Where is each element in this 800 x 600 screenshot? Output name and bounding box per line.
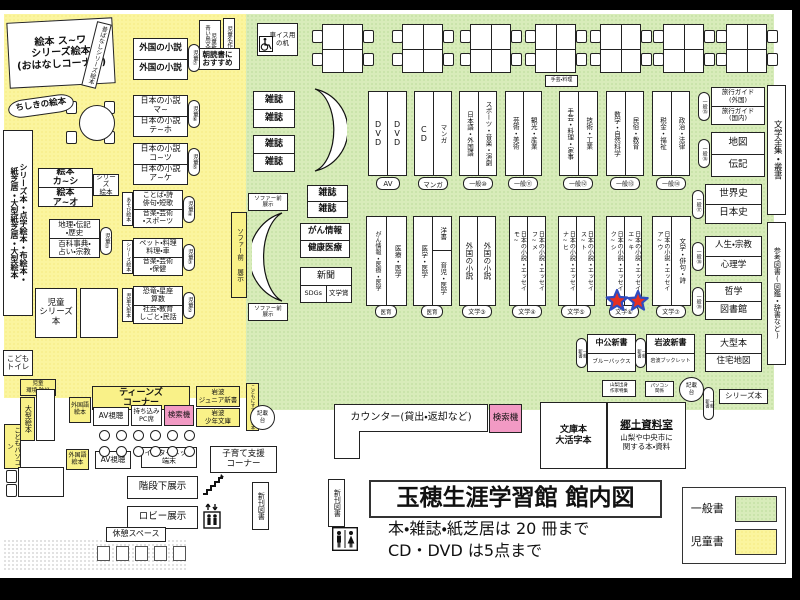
bench — [154, 546, 167, 561]
new-arrivals-shelf-1: 新刊図書 — [252, 482, 269, 530]
lobby-display: ロビー展示 — [127, 506, 198, 529]
reading-table — [600, 24, 641, 73]
music-art-health: 音楽・芸術 ・保健 — [134, 257, 182, 276]
shelf-column: 技術・工業 — [578, 91, 598, 176]
chair — [767, 53, 778, 66]
magazines-shelf: 雑誌 — [308, 186, 347, 201]
shelf-column-stack: 洋書 育児・医学 — [432, 216, 452, 306]
chair — [443, 30, 454, 43]
highlight-stars-icon — [605, 288, 651, 315]
tag-ippan-15: 一般⑮ — [698, 92, 710, 121]
maps-shelf: 地図 — [712, 133, 764, 154]
foreign-language-picture-books-2: 外国語 絵本 — [66, 449, 89, 470]
japanese-history-shelf: 日本史 — [706, 204, 761, 224]
empty-shelf — [80, 288, 118, 338]
teens-seat — [167, 446, 178, 457]
tag-av: AV — [376, 177, 400, 190]
chair — [511, 53, 522, 66]
chair — [363, 53, 374, 66]
chair — [511, 30, 522, 43]
shelf-column: DVD — [368, 91, 388, 176]
children-toilet: こども トイレ — [3, 350, 33, 376]
literary-prize-shelf: 文学賞 — [326, 286, 352, 303]
series-picture-books-label: シリーズ絵本 — [122, 240, 133, 274]
stairs-icon — [201, 473, 225, 500]
computer-books-box: パソコン 関係 — [645, 381, 674, 397]
search-terminal-counter: 検索機 — [489, 404, 522, 433]
shelf-column: がん情報・医療・医学 — [366, 216, 387, 306]
chair — [641, 30, 652, 43]
av-viewing-seat: AV視聴 — [93, 407, 129, 426]
map-title: 玉穂生涯学習館 館内図 — [369, 480, 662, 518]
elevator-icon — [203, 503, 221, 529]
shelf-column: 日本語・外国語 — [459, 91, 479, 176]
shelf-art-tourism: 芸術・美術 観光・産業 — [505, 91, 542, 176]
chair — [66, 131, 77, 144]
service-counter: カウンター(貸出・返却など) — [334, 404, 488, 432]
japanese-novels-ko-tsu: 日本の小説 コ~ツ — [134, 144, 187, 164]
shelf-tax-politics: 税金・福祉 政治・法律 — [652, 91, 690, 176]
tag-ippan-13: 一般⑬ — [610, 177, 640, 190]
pets-cooking-cars: ペット・料理 料理・車 — [134, 239, 182, 257]
local-materials-room-title: 郷土資料室 — [620, 420, 673, 432]
teens-seat — [133, 446, 144, 457]
reading-table — [402, 24, 443, 73]
morning-reading-recommended: 朝読書に おすすめ — [195, 48, 240, 70]
legend-children-swatch — [735, 529, 777, 555]
children-computer: こどもパソコン — [4, 424, 21, 469]
tag-ippan-17: 一般⑰ — [692, 190, 704, 219]
biography-shelf: 伝記 — [712, 154, 764, 176]
sofa-front-display-small-2: ソファー前 展示 — [248, 303, 288, 321]
legend-children-label: 児童書 — [691, 536, 724, 548]
tag-ippan-shinsho-2: 一般 新書 — [635, 338, 646, 368]
shelf-column: 観光・産業 — [523, 91, 542, 176]
shelf-column: 日本の小説・エッセイ モ~ — [509, 216, 528, 306]
foreign-novels-children-1: 外国の小説 — [134, 39, 187, 59]
iwanami-junior-shinsho: 岩波 ジュニア新書 — [196, 386, 240, 407]
tag-jido-2: 児童② — [183, 292, 195, 319]
shelf-column: 外国の小説 — [459, 216, 478, 306]
library-science-shelf: 図書館 — [706, 301, 761, 320]
writing-stand-2: 記載 台 — [250, 405, 275, 430]
magazines-shelf: 雑誌 — [254, 109, 294, 127]
philosophy-shelf: 哲学 — [706, 283, 761, 301]
tag-ippan-12: 一般⑫ — [563, 177, 593, 190]
words-poems-haiku: ことば・詩 俳句・短歌 — [134, 191, 182, 209]
search-terminal-teens: 検索機 — [164, 405, 194, 426]
music-art-sports: 音楽・芸術 ・スポーツ — [134, 209, 182, 228]
tag-bungaku-4: 文学④ — [512, 305, 542, 318]
tag-ippan-18: 一般⑱ — [692, 242, 704, 271]
large-picture-books: 大型絵本 — [20, 397, 35, 441]
shelf-japanese-novels-na: 日本の小説・エッセイ ナ~ヒ 日本の小説・エッセイ ス~ト — [558, 216, 595, 306]
children-large-books-label: 児童大型本 — [122, 288, 133, 322]
encyclopedia-fortune-religion: 百科事典・ 占い・宗教 — [50, 238, 99, 257]
reference-books-shelf: 参考図書(図鑑・辞書など) — [767, 222, 786, 365]
byod-pc-seat: 持ち込み PC席 — [131, 405, 162, 426]
bench — [173, 546, 186, 561]
teens-seat — [116, 446, 127, 457]
shelf-column: 税金・福祉 — [652, 91, 672, 176]
shelf-japanese-novels-mo: 日本の小説・エッセイ モ~ 日本の小説・エッセイ フ~メ — [509, 216, 546, 306]
bench — [97, 546, 110, 561]
local-materials-room-description: 山梨や中央市に 関する本・資料 — [620, 434, 673, 451]
teens-seat — [133, 430, 144, 441]
iwanami-shonen-bunko: 岩波 少年文庫 — [196, 408, 240, 427]
shelf-handicraft-engineering: 手芸・料理・家事 技術・工業 — [559, 91, 598, 176]
magazines-shelf: 雑誌 — [254, 92, 294, 109]
tag-iiku-1: 医育 — [375, 305, 397, 318]
shelf-column: 日本の小説・エッセイ ア~ウ — [652, 216, 672, 306]
shelf-cd-manga: CD マンガ — [414, 91, 452, 176]
shelf-column: 医療・医学 — [386, 216, 407, 306]
society-education-folklore: 社会・教育 しごと・民話 — [134, 305, 182, 324]
paperbacks-large-print-room: 文庫本 大活字本 — [540, 402, 607, 469]
tag-iiku-2: 医育 — [421, 305, 443, 318]
shelf-language-performing: 日本語・外国語 スポーツ・音楽・演劇 — [459, 91, 497, 176]
newspapers-shelf: 新聞 — [301, 268, 351, 285]
shelf-japanese-novels-a-literature: 日本の小説・エッセイ ア~ウ 文学・俳句・詩 — [652, 216, 691, 306]
reading-table — [18, 467, 64, 497]
floor-map: 絵本 ス~ワ シリーズ絵本 (おはなしコーナー) 昔ばなしシリーズ絵本 ちしきの… — [0, 0, 800, 600]
wheelchair-icon — [259, 36, 273, 52]
shelf-science-education: 数学・自然科学 民俗・教育 — [606, 91, 644, 176]
restroom-icon — [332, 527, 358, 551]
tag-bungaku-5: 文学⑤ — [561, 305, 591, 318]
magazines-shelf: 雑誌 — [254, 153, 294, 171]
teens-seat — [99, 446, 110, 457]
tag-ippan-16: 一般⑯ — [698, 139, 710, 168]
writing-stand-1: 記載 台 — [679, 377, 704, 402]
cancer-information-corner: がん情報 — [301, 224, 349, 240]
chair — [6, 484, 17, 497]
magazines-shelf: 雑誌 — [308, 201, 347, 217]
childcare-support-corner: 子育て支援 コーナー — [210, 446, 277, 473]
empty-shelf — [36, 389, 55, 441]
psychology-shelf: 心理学 — [706, 256, 761, 276]
shelf-column: 数学・自然科学 — [606, 91, 626, 176]
tag-bungaku-7: 文学⑦ — [656, 305, 686, 318]
new-arrivals-shelf-2: 新刊図書 — [328, 479, 345, 527]
geography-biography-history: 地理・伝記 ・歴史 — [50, 220, 99, 238]
round-table — [79, 105, 115, 141]
reading-table — [322, 24, 363, 73]
shelf-column: 芸術・美術 — [505, 91, 524, 176]
tag-jido-6: 児童⑥ — [188, 100, 200, 128]
series-picture-books-box: シリーズ 絵本 — [93, 174, 119, 196]
legend-general-label: 一般書 — [691, 503, 724, 515]
residential-maps-shelf: 住宅地図 — [706, 353, 761, 372]
picture-books-ka-shi: 絵本 カ~シ — [39, 168, 92, 187]
japanese-novels-te-ho: 日本の小説 テ~ホ — [134, 116, 187, 137]
iwanami-shinsho-shelf: 岩波新書 — [647, 335, 694, 353]
loan-limit-note-av: CD・DVD は5点まで — [388, 541, 658, 561]
shelf-medical-childcare: 医学・医学 洋書 育児・医学 — [413, 216, 452, 306]
tag-ippan-shinsho-3: 一般 新書 — [703, 387, 714, 420]
sdgs-shelf: SDGs — [301, 286, 326, 303]
reading-table — [726, 24, 767, 73]
teens-seat — [167, 430, 178, 441]
iwanami-booklet-shelf: 岩波ブックレット — [647, 353, 694, 372]
tag-jido-3: 児童③ — [183, 244, 195, 271]
reading-table — [663, 24, 704, 73]
shelf-column: 文学・俳句・詩 — [671, 216, 691, 306]
travel-guides-domestic: 旅行ガイド (国内) — [712, 106, 764, 125]
teens-seat — [116, 430, 127, 441]
tag-ippan-shinsho-1: 一般 新書 — [576, 338, 587, 368]
tag-ippan-19: 一般⑲ — [692, 287, 704, 316]
chair — [767, 30, 778, 43]
shelf-column: 日本の小説・エッセイ ス~ト — [576, 216, 595, 306]
chair — [443, 53, 454, 66]
teens-seat — [150, 430, 161, 441]
chair — [641, 53, 652, 66]
western-books-cell: 洋書 — [433, 217, 451, 250]
shelf-column: DVD — [387, 91, 407, 176]
teens-seat — [150, 446, 161, 457]
shelf-foreign-novels: 外国の小説 外国の小説 — [459, 216, 496, 306]
bench — [116, 546, 129, 561]
shelf-dvd: DVD DVD — [368, 91, 407, 176]
travel-guides-foreign: 旅行ガイド (外国) — [712, 88, 764, 106]
series-braille-kamishibai-shelf: シリーズ本・点字絵本・布絵本・ 紙芝居・大型紙芝居・大型絵本 — [3, 130, 33, 316]
shelf-column: CD — [414, 91, 434, 176]
reading-table — [470, 24, 511, 73]
literature-collections-shelf: 文学全集・叢書 — [767, 85, 786, 215]
reading-table — [535, 24, 576, 73]
legend-general-swatch — [735, 496, 777, 522]
chair — [704, 30, 715, 43]
teens-seat — [184, 446, 195, 457]
chair — [704, 53, 715, 66]
foreign-language-picture-books: 外国語 絵本 — [69, 397, 91, 423]
sofa-front-display-strip: ソファー前 展示 — [231, 212, 247, 298]
crescent-sofa — [252, 211, 286, 303]
crescent-display-shelf — [311, 87, 347, 173]
chair — [6, 470, 17, 483]
shelf-column: 外国の小説 — [477, 216, 496, 306]
tag-ippan-10: 一般⑩ — [463, 177, 493, 190]
tag-manga: マンガ — [418, 177, 448, 190]
shelf-column: 政治・法律 — [671, 91, 691, 176]
large-books-shelf: 大型本 — [706, 335, 761, 353]
play-picture-books-label: あそび絵本 — [122, 192, 133, 226]
teens-seat — [184, 430, 195, 441]
shelf-cancer-medical: がん情報・医療・医学 医療・医学 — [366, 216, 407, 306]
tag-jido-1: 児童① — [100, 227, 112, 255]
shelf-column: 民俗・教育 — [625, 91, 645, 176]
shelf-column: 医学・医学 — [413, 216, 433, 306]
tag-ippan-14: 一般⑭ — [656, 177, 686, 190]
tag-jido-4: 児童④ — [183, 196, 195, 223]
picture-books-a-o: 絵本 ア~オ — [39, 187, 92, 207]
series-books-shelf: シリーズ本 — [719, 389, 768, 404]
legend: 一般書 児童書 — [682, 487, 786, 564]
teens-seat — [99, 430, 110, 441]
service-counter-leg — [334, 431, 360, 459]
shelf-column: 日本の小説・エッセイ フ~メ — [527, 216, 546, 306]
shelf-column: スポーツ・音楽・演劇 — [478, 91, 498, 176]
chair — [576, 30, 587, 43]
rest-space-label: 休憩スペース — [106, 527, 166, 542]
shelf-column: 日本の小説・エッセイ ナ~ヒ — [558, 216, 577, 306]
foreign-novels-children-2: 外国の小説 — [134, 59, 187, 80]
chuko-shinsho-shelf: 中公新書 — [588, 335, 635, 353]
tag-ippan-11: 一般⑪ — [508, 177, 538, 190]
bluebacks-shelf: ブルーバックス — [588, 353, 635, 372]
world-history-shelf: 世界史 — [706, 185, 761, 204]
life-religion-shelf: 人生・宗教 — [706, 237, 761, 256]
children-series-books: 児童 シリーズ本 — [35, 288, 77, 338]
tag-jido-5: 児童⑤ — [188, 148, 200, 176]
japanese-novels-a-ke: 日本の小説 ア~ケ — [134, 164, 187, 185]
tag-bungaku-3: 文学③ — [462, 305, 492, 318]
sofa-front-display-small-1: ソファー前 展示 — [248, 193, 288, 211]
chair — [363, 30, 374, 43]
tag-jido-7: 児童⑦ — [188, 44, 200, 72]
bench — [135, 546, 148, 561]
japanese-novels-ma: 日本の小説 マ~ — [134, 96, 187, 116]
shelf-column: マンガ — [433, 91, 453, 176]
shelf-column: 手芸・料理・家事 — [559, 91, 579, 176]
loan-limit-note-books: 本・雑誌・紙芝居は 20 冊まで — [388, 519, 658, 539]
dinosaurs-stars-math: 恐竜・星座 算数 — [134, 287, 182, 305]
yamanashi-authors-feature: 山梨出身 作家特集 — [602, 380, 636, 397]
chair — [576, 53, 587, 66]
under-stairs-display: 階段下展示 — [127, 476, 198, 499]
health-medical-corner: 健康医療 — [301, 240, 349, 257]
handicraft-cooking-mini-label: 手芸・料理 — [545, 75, 578, 87]
childcare-medical-cell: 育児・医学 — [433, 250, 451, 305]
magazines-shelf: 雑誌 — [254, 136, 294, 153]
